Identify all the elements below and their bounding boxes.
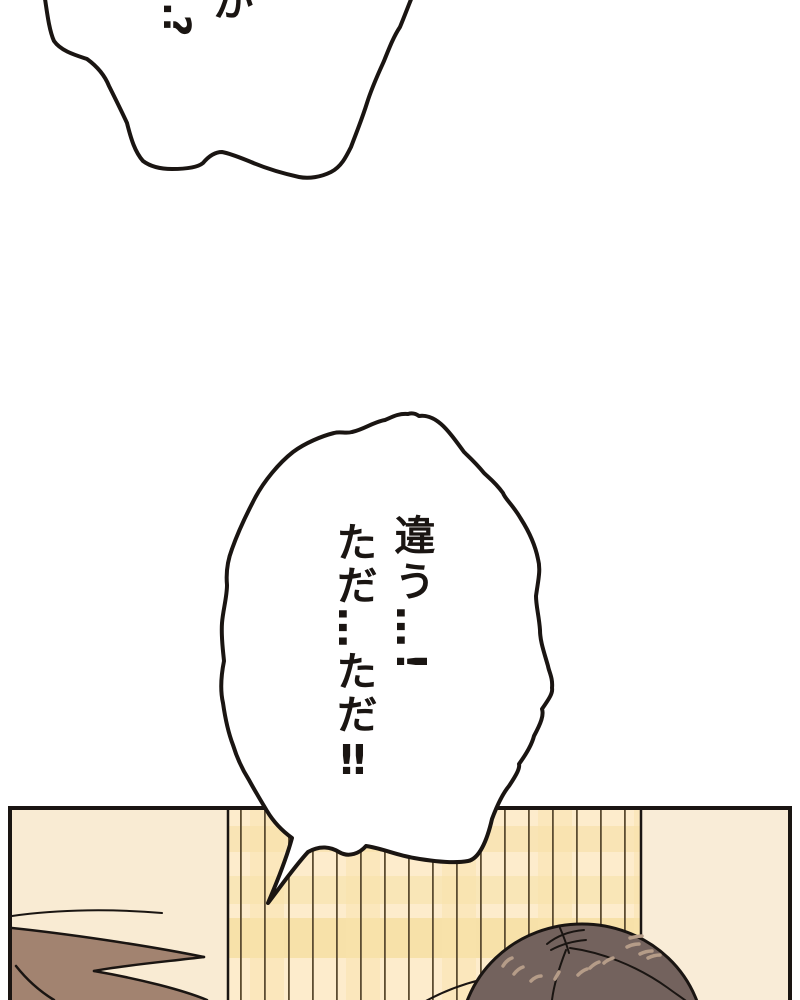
comic-page: か …? 違う…! ただ…ただ‼ [0, 0, 800, 1000]
speech-bubble-top-text-col-2: …? [158, 0, 195, 36]
speech-bubble-middle-text-col-2: ただ…ただ‼ [332, 521, 373, 786]
speech-bubble-top [44, 0, 414, 178]
comic-artwork [0, 0, 800, 1000]
speech-bubble-middle-text-col-1: 違う…! [390, 514, 431, 676]
speech-bubble-top-text-col-1: か [208, 0, 249, 21]
